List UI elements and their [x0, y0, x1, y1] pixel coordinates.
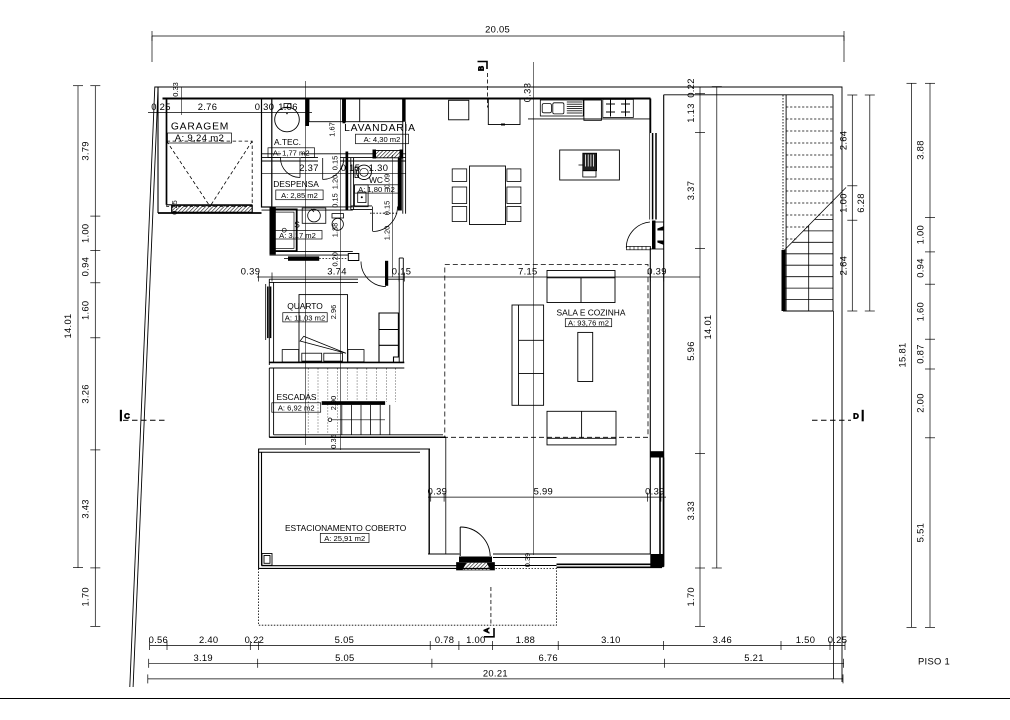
svg-text:5.05: 5.05 — [335, 634, 354, 645]
svg-text:ESTACIONAMENTO COBERTO: ESTACIONAMENTO COBERTO — [285, 523, 407, 533]
svg-text:0.22: 0.22 — [685, 78, 696, 97]
svg-text:1.88: 1.88 — [516, 634, 535, 645]
svg-text:3.33: 3.33 — [685, 501, 696, 520]
svg-text:0.15: 0.15 — [383, 201, 392, 215]
svg-text:6.28: 6.28 — [855, 193, 866, 212]
svg-text:0.15: 0.15 — [341, 162, 360, 173]
svg-text:0.25: 0.25 — [828, 634, 847, 645]
svg-text:1.70: 1.70 — [685, 587, 696, 606]
svg-text:5.51: 5.51 — [915, 523, 926, 542]
svg-text:0.94: 0.94 — [915, 258, 926, 277]
svg-text:SALA E COZINHA: SALA E COZINHA — [557, 308, 626, 318]
svg-text:2.76: 2.76 — [198, 101, 217, 112]
svg-text:2.37: 2.37 — [299, 162, 318, 173]
svg-text:1.60: 1.60 — [80, 301, 91, 320]
svg-text:WC: WC — [369, 175, 383, 185]
svg-text:5.96: 5.96 — [685, 341, 696, 360]
svg-text:S: S — [294, 220, 300, 230]
svg-text:0.22: 0.22 — [245, 634, 264, 645]
svg-text:1.00: 1.00 — [466, 634, 485, 645]
svg-text:1.13: 1.13 — [685, 103, 696, 122]
svg-text:0.15: 0.15 — [331, 193, 340, 207]
svg-text:0.33: 0.33 — [521, 83, 532, 102]
svg-text:PISO 1: PISO 1 — [918, 656, 950, 667]
svg-text:3.26: 3.26 — [80, 384, 91, 403]
svg-text:D: D — [853, 411, 859, 420]
svg-text:1.00: 1.00 — [838, 193, 849, 212]
svg-text:3.10: 3.10 — [601, 634, 620, 645]
svg-text:1.00: 1.00 — [915, 225, 926, 244]
svg-text:0.15: 0.15 — [331, 156, 340, 170]
svg-text:2.40: 2.40 — [199, 634, 218, 645]
svg-text:6.76: 6.76 — [538, 652, 557, 663]
svg-text:3.19: 3.19 — [193, 652, 212, 663]
svg-text:14.01: 14.01 — [702, 315, 713, 340]
svg-text:7.15: 7.15 — [518, 266, 537, 277]
svg-text:A: 1,77 m2: A: 1,77 m2 — [273, 149, 310, 158]
svg-text:3.43: 3.43 — [80, 499, 91, 518]
svg-text:1.38: 1.38 — [331, 223, 340, 237]
svg-text:3.37: 3.37 — [685, 181, 696, 200]
svg-text:A: 6,92 m2: A: 6,92 m2 — [278, 404, 315, 413]
svg-text:1.06: 1.06 — [278, 101, 297, 112]
svg-text:1.20: 1.20 — [331, 175, 340, 189]
svg-text:A: 93,76 m2: A: 93,76 m2 — [568, 319, 609, 328]
svg-text:A: 25,91 m2: A: 25,91 m2 — [324, 534, 365, 543]
svg-text:0.33: 0.33 — [171, 82, 180, 96]
svg-text:2.90: 2.90 — [329, 396, 338, 410]
svg-text:1.00: 1.00 — [80, 224, 91, 243]
svg-text:0.78: 0.78 — [435, 634, 454, 645]
svg-text:0.39: 0.39 — [647, 266, 666, 277]
svg-text:1.50: 1.50 — [796, 634, 815, 645]
svg-text:A: 1,80 m2: A: 1,80 m2 — [358, 185, 395, 194]
svg-text:A: 2,85 m2: A: 2,85 m2 — [281, 191, 318, 200]
svg-text:1.20: 1.20 — [383, 226, 392, 240]
svg-text:0.94: 0.94 — [80, 257, 91, 276]
svg-text:QUARTO: QUARTO — [287, 301, 323, 311]
svg-text:1.67: 1.67 — [328, 122, 337, 136]
svg-text:A: 3,17 m2: A: 3,17 m2 — [279, 231, 316, 240]
svg-text:1.70: 1.70 — [80, 587, 91, 606]
svg-text:2.64: 2.64 — [838, 256, 849, 275]
svg-text:GARAGEM: GARAGEM — [171, 122, 229, 133]
svg-text:1.60: 1.60 — [915, 302, 926, 321]
svg-text:20.21: 20.21 — [483, 667, 508, 678]
svg-text:DESPENSA: DESPENSA — [273, 179, 319, 189]
svg-text:15.81: 15.81 — [897, 343, 908, 368]
svg-text:0.35: 0.35 — [329, 434, 338, 448]
svg-text:C: C — [124, 411, 130, 420]
svg-text:A: 9,24 m2: A: 9,24 m2 — [175, 133, 224, 144]
svg-text:0.25: 0.25 — [151, 101, 170, 112]
svg-text:2.96: 2.96 — [329, 305, 338, 319]
svg-text:A: 4,30 m2: A: 4,30 m2 — [364, 135, 401, 144]
svg-text:0.39: 0.39 — [645, 486, 664, 497]
svg-text:2.00: 2.00 — [915, 393, 926, 412]
svg-text:0.30: 0.30 — [255, 101, 274, 112]
svg-text:5.99: 5.99 — [534, 486, 553, 497]
svg-text:5.05: 5.05 — [335, 652, 354, 663]
svg-text:0.56: 0.56 — [149, 634, 168, 645]
svg-text:LAVANDARIA: LAVANDARIA — [344, 123, 416, 134]
svg-text:0.15: 0.15 — [392, 266, 411, 277]
svg-text:20.05: 20.05 — [485, 24, 510, 35]
svg-text:14.01: 14.01 — [62, 314, 73, 339]
svg-text:ESCADAS: ESCADAS — [276, 392, 316, 402]
svg-text:3.79: 3.79 — [80, 141, 91, 160]
svg-text:A.TEC.: A.TEC. — [274, 137, 301, 147]
svg-text:3.88: 3.88 — [915, 140, 926, 159]
svg-text:0.25: 0.25 — [170, 200, 179, 214]
svg-text:0.39: 0.39 — [428, 486, 447, 497]
svg-text:0.20: 0.20 — [331, 252, 340, 266]
svg-text:0.39: 0.39 — [523, 553, 532, 567]
svg-text:B: B — [477, 66, 486, 71]
svg-text:0.39: 0.39 — [241, 266, 260, 277]
svg-text:0.87: 0.87 — [915, 344, 926, 363]
svg-text:2.64: 2.64 — [838, 131, 849, 150]
svg-text:5.21: 5.21 — [744, 652, 763, 663]
svg-text:A: 11,03 m2: A: 11,03 m2 — [285, 313, 325, 322]
svg-text:3.46: 3.46 — [713, 634, 732, 645]
svg-text:1.30: 1.30 — [369, 162, 388, 173]
